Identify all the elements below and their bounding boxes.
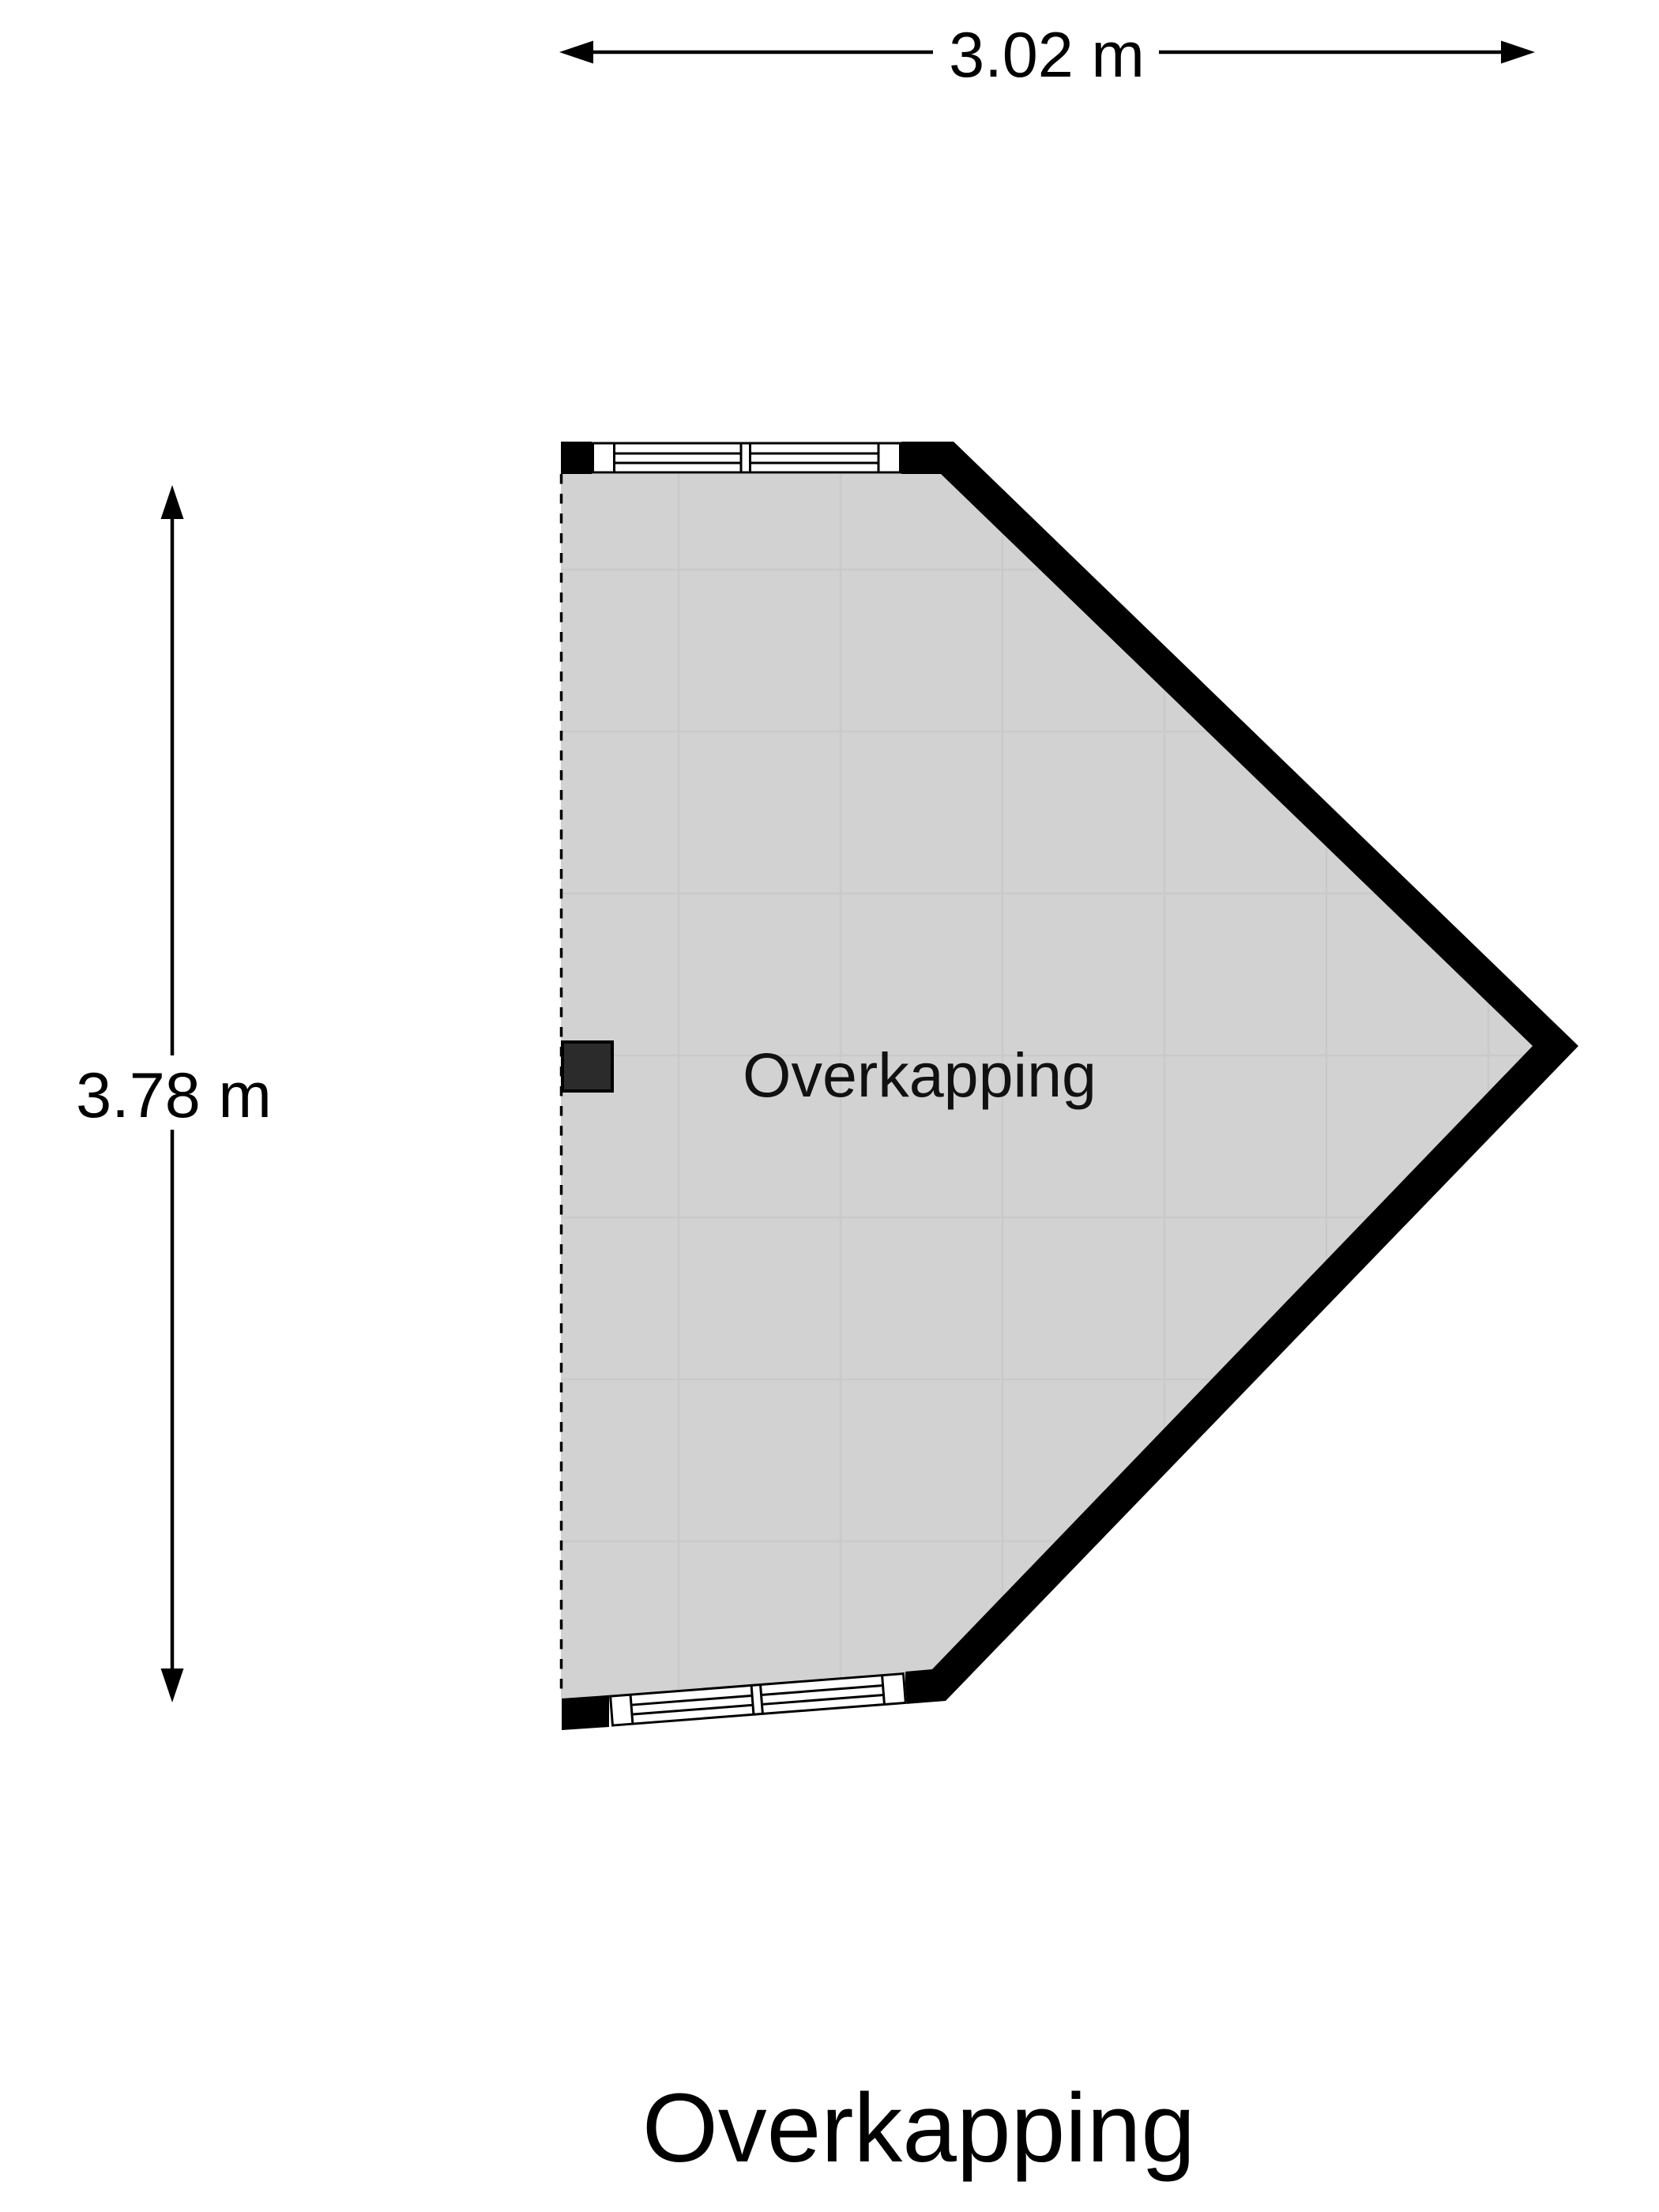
svg-text:Overkapping: Overkapping bbox=[743, 1040, 1097, 1110]
svg-text:3.78 m: 3.78 m bbox=[76, 1060, 272, 1131]
svg-text:Overkapping: Overkapping bbox=[642, 2074, 1195, 2183]
svg-text:3.02 m: 3.02 m bbox=[949, 20, 1145, 91]
